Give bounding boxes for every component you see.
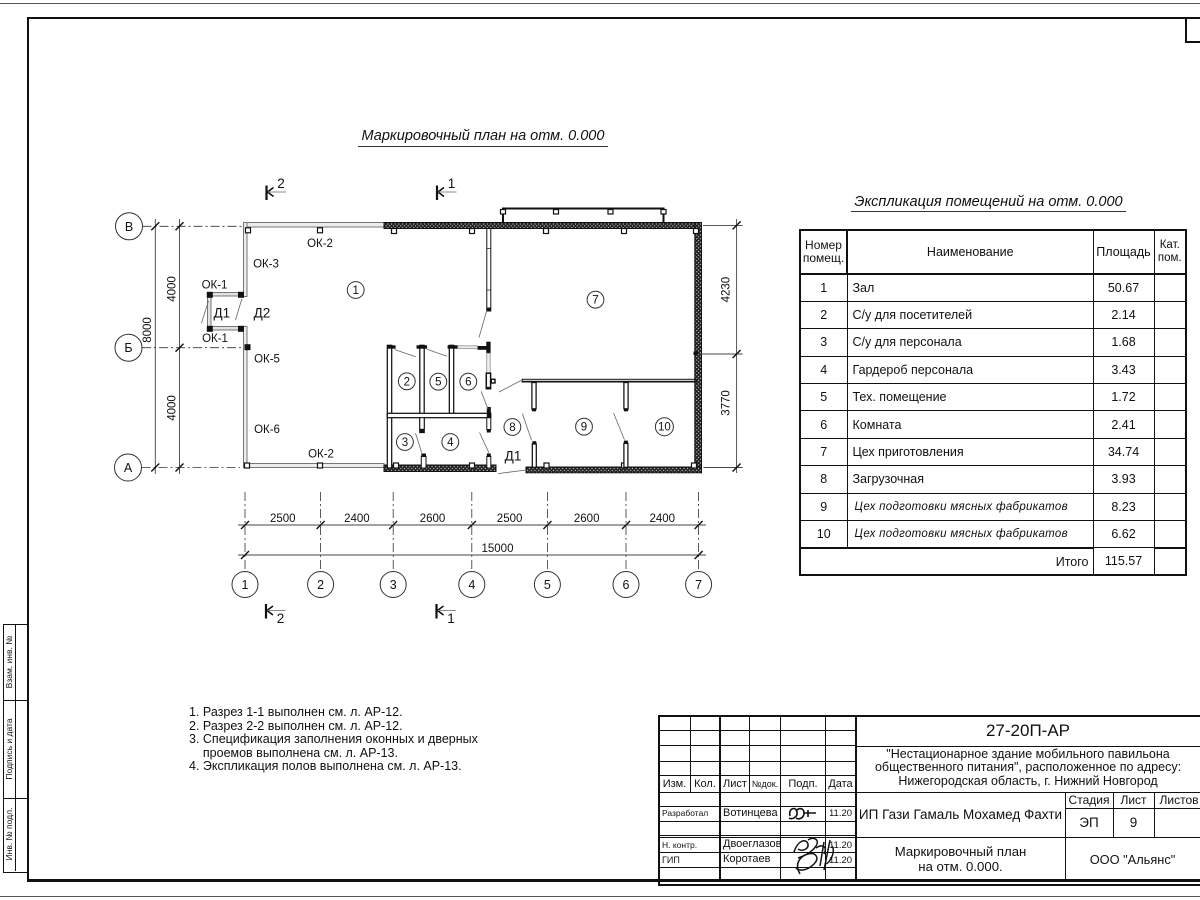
svg-text:В: В — [125, 220, 133, 234]
svg-text:ОК-5: ОК-5 — [254, 354, 280, 366]
svg-text:2: 2 — [404, 376, 410, 388]
svg-text:2600: 2600 — [574, 513, 600, 525]
svg-text:3: 3 — [402, 437, 408, 449]
svg-text:4230: 4230 — [721, 277, 733, 303]
svg-text:А: А — [124, 461, 133, 475]
svg-text:1: 1 — [242, 578, 249, 592]
svg-text:3: 3 — [390, 578, 397, 592]
svg-text:4: 4 — [468, 578, 475, 592]
svg-text:Д2: Д2 — [254, 306, 271, 321]
svg-text:ОК-2: ОК-2 — [307, 238, 333, 250]
svg-text:Д1: Д1 — [213, 306, 230, 321]
svg-text:2400: 2400 — [650, 513, 676, 525]
svg-text:ОК-2: ОК-2 — [308, 449, 334, 461]
svg-text:7: 7 — [592, 295, 598, 307]
svg-text:1: 1 — [447, 611, 455, 626]
svg-text:6: 6 — [623, 578, 630, 592]
svg-text:7: 7 — [695, 578, 702, 592]
svg-text:4000: 4000 — [166, 276, 178, 302]
svg-text:1: 1 — [352, 285, 358, 297]
svg-text:2: 2 — [317, 578, 324, 592]
svg-text:ОК-1: ОК-1 — [202, 280, 228, 292]
svg-text:15000: 15000 — [482, 543, 514, 555]
svg-text:2500: 2500 — [497, 513, 523, 525]
svg-text:9: 9 — [581, 422, 587, 434]
svg-text:10: 10 — [658, 422, 671, 434]
svg-text:5: 5 — [435, 377, 441, 389]
svg-text:4: 4 — [447, 437, 454, 449]
svg-text:ОК-1: ОК-1 — [202, 333, 228, 345]
svg-text:ОК-3: ОК-3 — [253, 259, 279, 271]
svg-text:ОК-6: ОК-6 — [254, 424, 280, 436]
svg-text:2600: 2600 — [420, 513, 446, 525]
svg-text:2400: 2400 — [344, 513, 370, 525]
svg-text:2: 2 — [277, 611, 285, 626]
svg-text:8: 8 — [509, 422, 515, 434]
svg-text:2500: 2500 — [270, 513, 296, 525]
svg-text:8000: 8000 — [142, 317, 154, 343]
svg-text:3770: 3770 — [721, 390, 733, 416]
svg-text:4000: 4000 — [166, 395, 178, 421]
svg-text:6: 6 — [465, 377, 471, 389]
svg-text:Д1: Д1 — [505, 449, 522, 464]
svg-text:2: 2 — [277, 176, 285, 191]
svg-text:1: 1 — [448, 176, 456, 191]
svg-text:Б: Б — [124, 341, 132, 355]
svg-text:5: 5 — [544, 578, 551, 592]
